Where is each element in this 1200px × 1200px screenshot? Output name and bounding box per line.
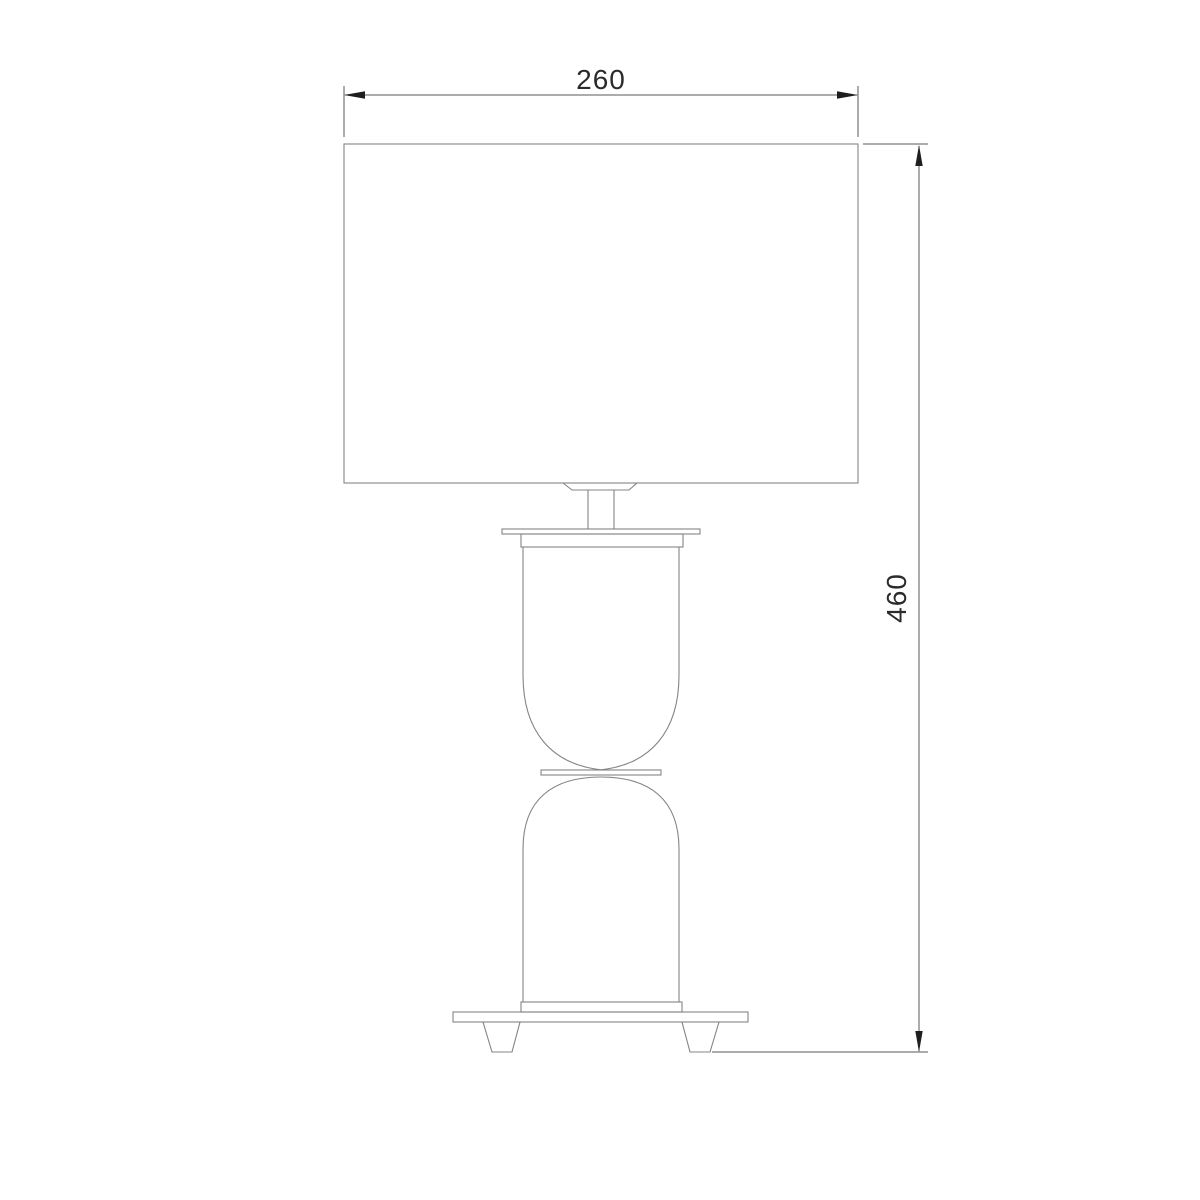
lower-collar	[521, 1002, 682, 1012]
upper-body-cup	[523, 547, 679, 770]
shade-holder	[563, 483, 637, 490]
arrowhead-left-icon	[344, 91, 365, 98]
stem	[588, 490, 614, 529]
base-plate	[453, 1012, 748, 1022]
lamp-technical-drawing: 260 460	[0, 0, 1200, 1200]
height-dimension: 460	[712, 144, 928, 1052]
drawing-canvas: 260 460	[0, 0, 1200, 1200]
lower-body-dome	[523, 777, 679, 1002]
lamp-shade	[344, 144, 858, 483]
arrowhead-right-icon	[837, 91, 858, 98]
arrowhead-up-icon	[915, 145, 922, 166]
lamp-outline	[344, 144, 858, 1052]
width-dimension-label: 260	[576, 64, 626, 95]
top-plate	[502, 529, 700, 534]
height-dimension-label: 460	[881, 573, 912, 623]
width-dimension: 260	[344, 64, 858, 137]
left-foot	[483, 1022, 520, 1052]
upper-collar	[521, 534, 683, 547]
middle-disc	[541, 770, 661, 775]
arrowhead-down-icon	[915, 1031, 922, 1052]
right-foot	[682, 1022, 719, 1052]
